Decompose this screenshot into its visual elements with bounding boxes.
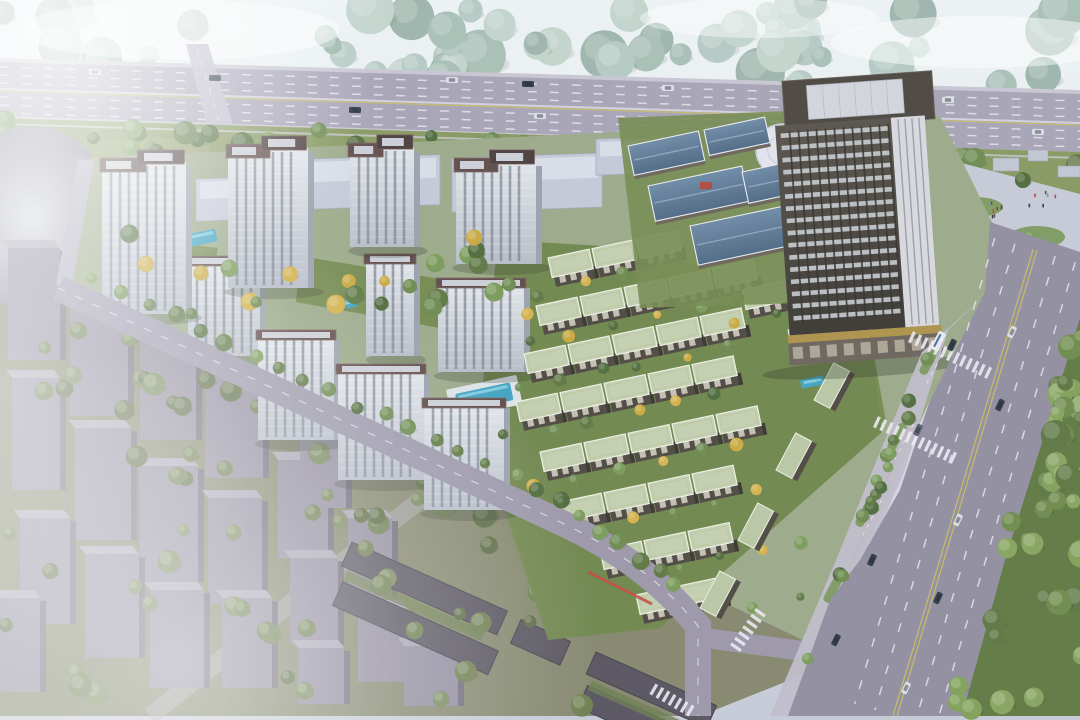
- atmosphere: [0, 0, 1080, 720]
- aerial-render-figure: [0, 0, 1080, 720]
- color-cast: [0, 0, 1080, 720]
- scene-canvas: [0, 0, 1080, 720]
